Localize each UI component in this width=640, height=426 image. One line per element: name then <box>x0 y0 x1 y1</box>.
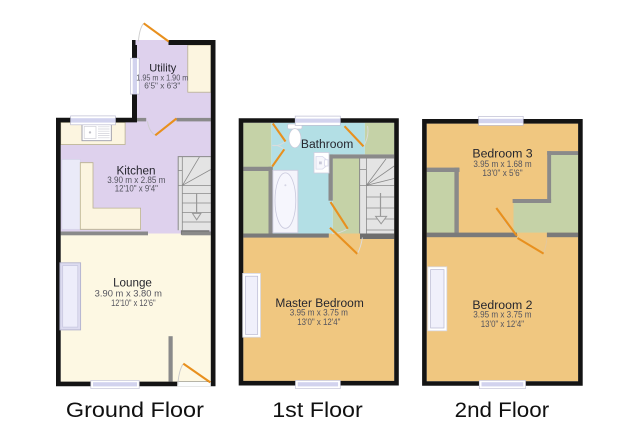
svg-text:6'5" x 6'3": 6'5" x 6'3" <box>144 81 180 91</box>
svg-text:12'10" x 12'6": 12'10" x 12'6" <box>111 298 156 308</box>
svg-text:1st Floor: 1st Floor <box>272 399 363 422</box>
svg-text:Lounge: Lounge <box>113 275 152 289</box>
svg-text:13'0" x 5'6": 13'0" x 5'6" <box>482 168 522 178</box>
svg-text:3.90 m x 3.80 m: 3.90 m x 3.80 m <box>95 289 162 299</box>
svg-text:13'0" x 12'4": 13'0" x 12'4" <box>481 319 524 329</box>
svg-text:13'0" x 12'4": 13'0" x 12'4" <box>297 317 340 327</box>
svg-text:12'10" x 9'4": 12'10" x 9'4" <box>115 184 158 194</box>
svg-text:Ground Floor: Ground Floor <box>66 399 204 422</box>
svg-text:Bathroom: Bathroom <box>301 139 353 151</box>
svg-text:2nd Floor: 2nd Floor <box>455 399 550 422</box>
